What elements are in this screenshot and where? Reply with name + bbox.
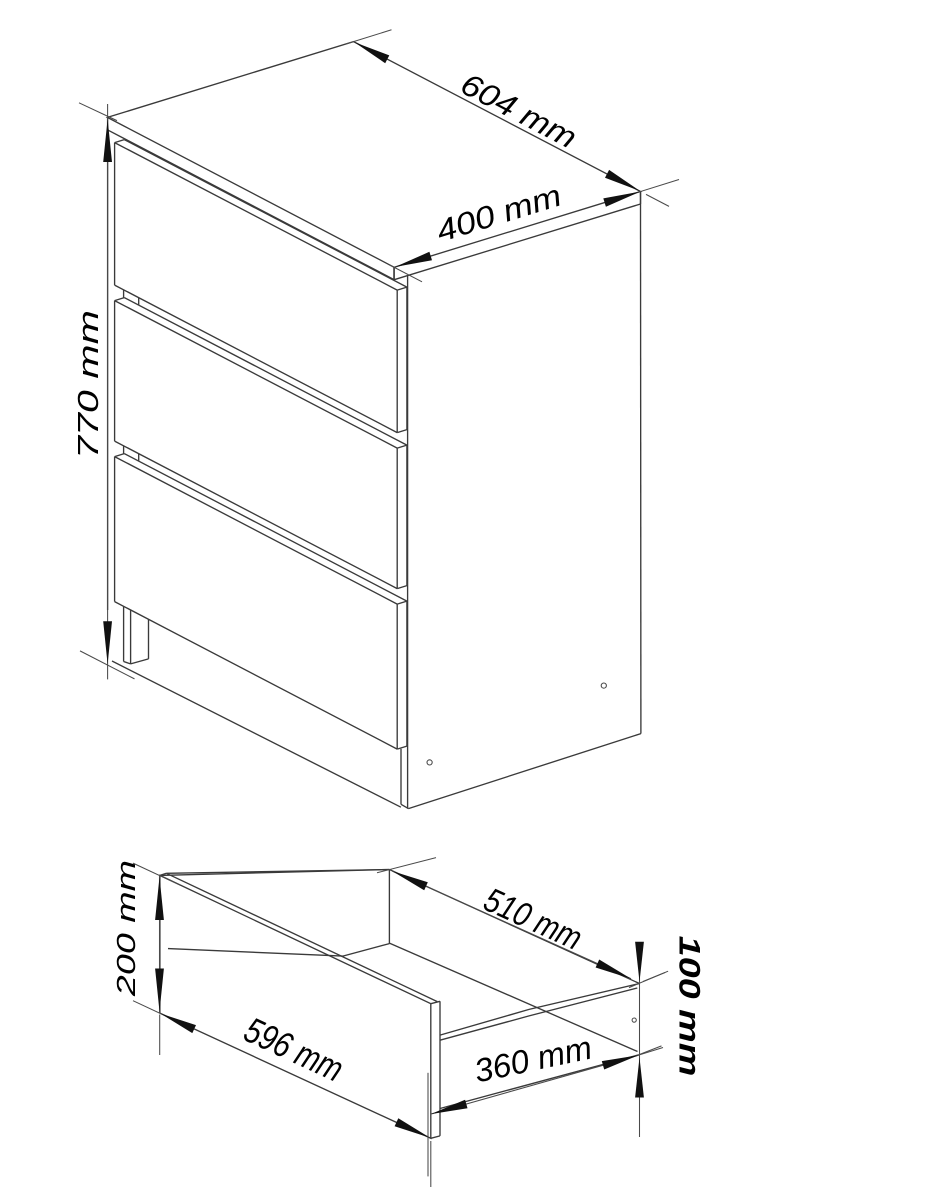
- svg-text:100 mm: 100 mm: [672, 936, 705, 1077]
- svg-text:770 mm: 770 mm: [72, 310, 105, 459]
- svg-text:200 mm: 200 mm: [112, 860, 141, 997]
